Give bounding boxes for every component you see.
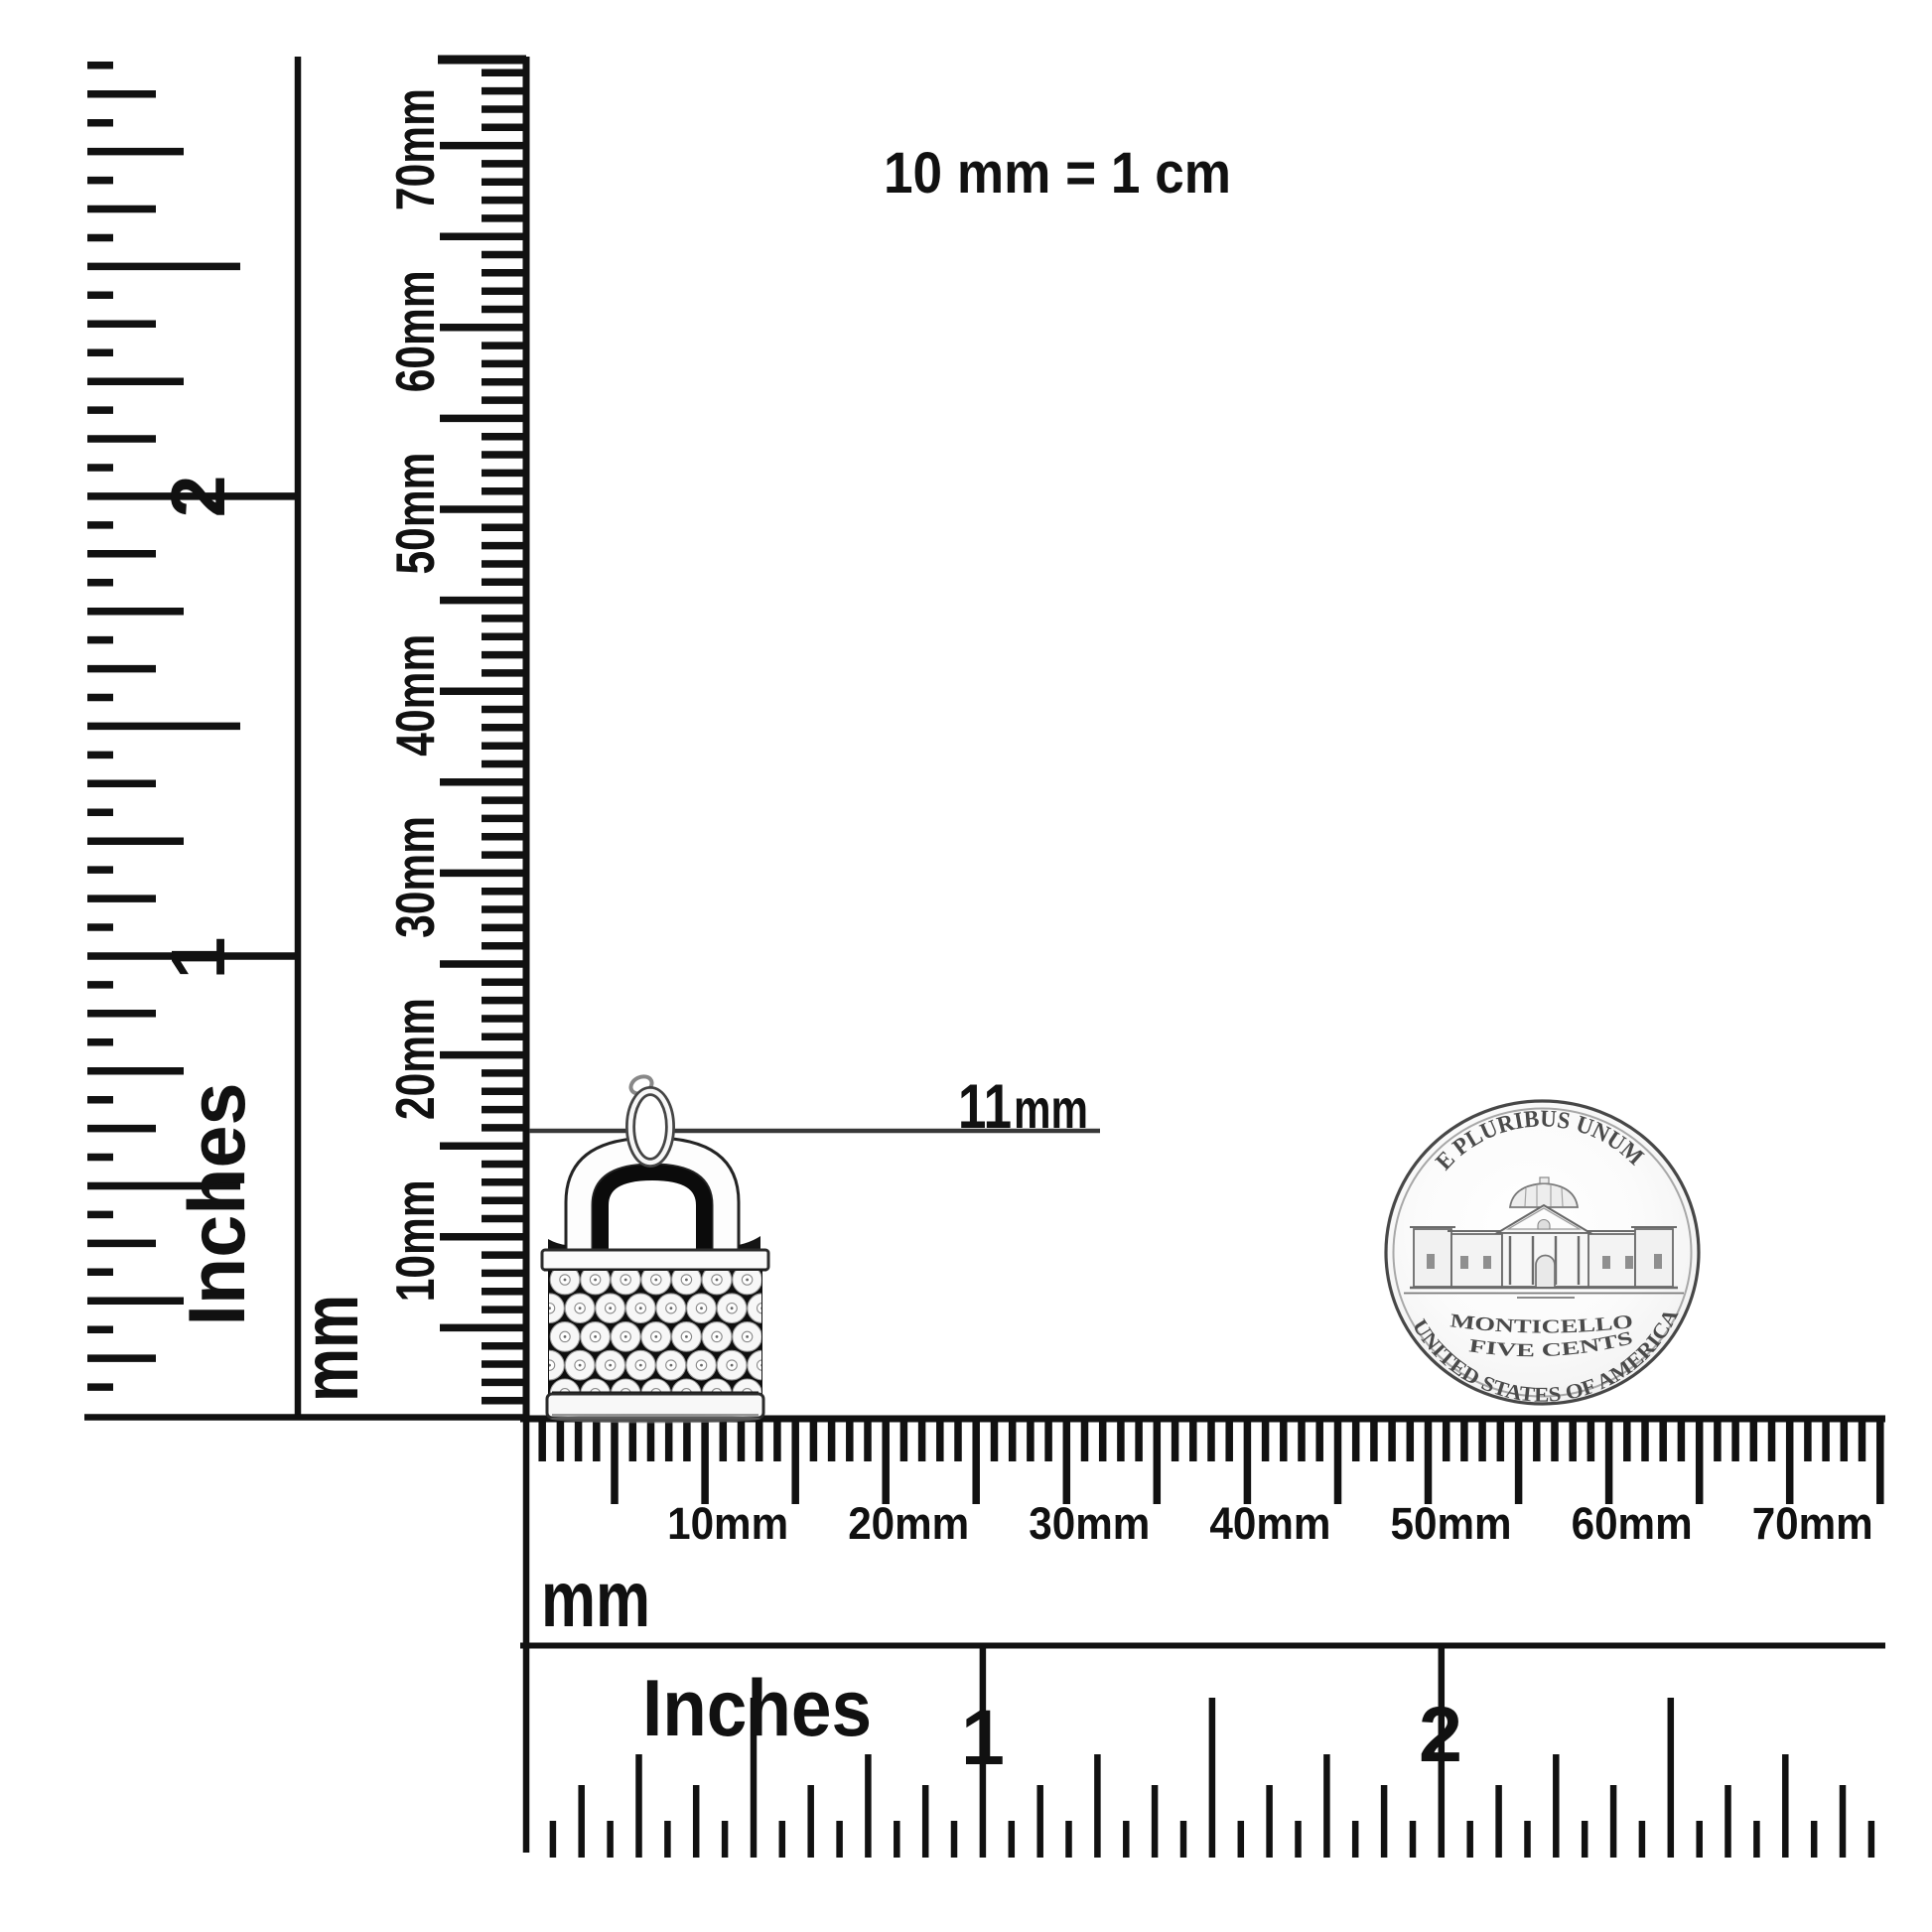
svg-text:Inches: Inches — [642, 1664, 872, 1753]
svg-text:60mm: 60mm — [384, 270, 446, 392]
svg-text:10mm: 10mm — [384, 1179, 446, 1302]
svg-text:2: 2 — [1419, 1690, 1462, 1778]
svg-text:30mm: 30mm — [384, 816, 446, 938]
svg-text:70mm: 70mm — [1752, 1498, 1873, 1549]
svg-text:Inches: Inches — [173, 1083, 262, 1326]
svg-text:20mm: 20mm — [384, 998, 446, 1120]
svg-text:mm: mm — [541, 1555, 650, 1643]
svg-text:11: 11 — [958, 1072, 1012, 1142]
svg-text:50mm: 50mm — [384, 453, 446, 575]
svg-text:20mm: 20mm — [848, 1498, 969, 1549]
svg-text:mm: mm — [1014, 1077, 1088, 1140]
svg-text:1: 1 — [156, 937, 241, 980]
svg-text:40mm: 40mm — [384, 634, 446, 757]
svg-text:1: 1 — [961, 1693, 1005, 1781]
svg-text:10mm: 10mm — [667, 1498, 788, 1549]
svg-text:mm: mm — [286, 1295, 374, 1402]
svg-text:10 mm = 1 cm: 10 mm = 1 cm — [884, 141, 1231, 206]
svg-text:70mm: 70mm — [384, 88, 446, 210]
svg-text:2: 2 — [156, 476, 241, 518]
svg-text:40mm: 40mm — [1209, 1498, 1330, 1549]
svg-text:30mm: 30mm — [1029, 1498, 1150, 1549]
svg-text:50mm: 50mm — [1391, 1498, 1512, 1549]
svg-text:60mm: 60mm — [1572, 1498, 1693, 1549]
